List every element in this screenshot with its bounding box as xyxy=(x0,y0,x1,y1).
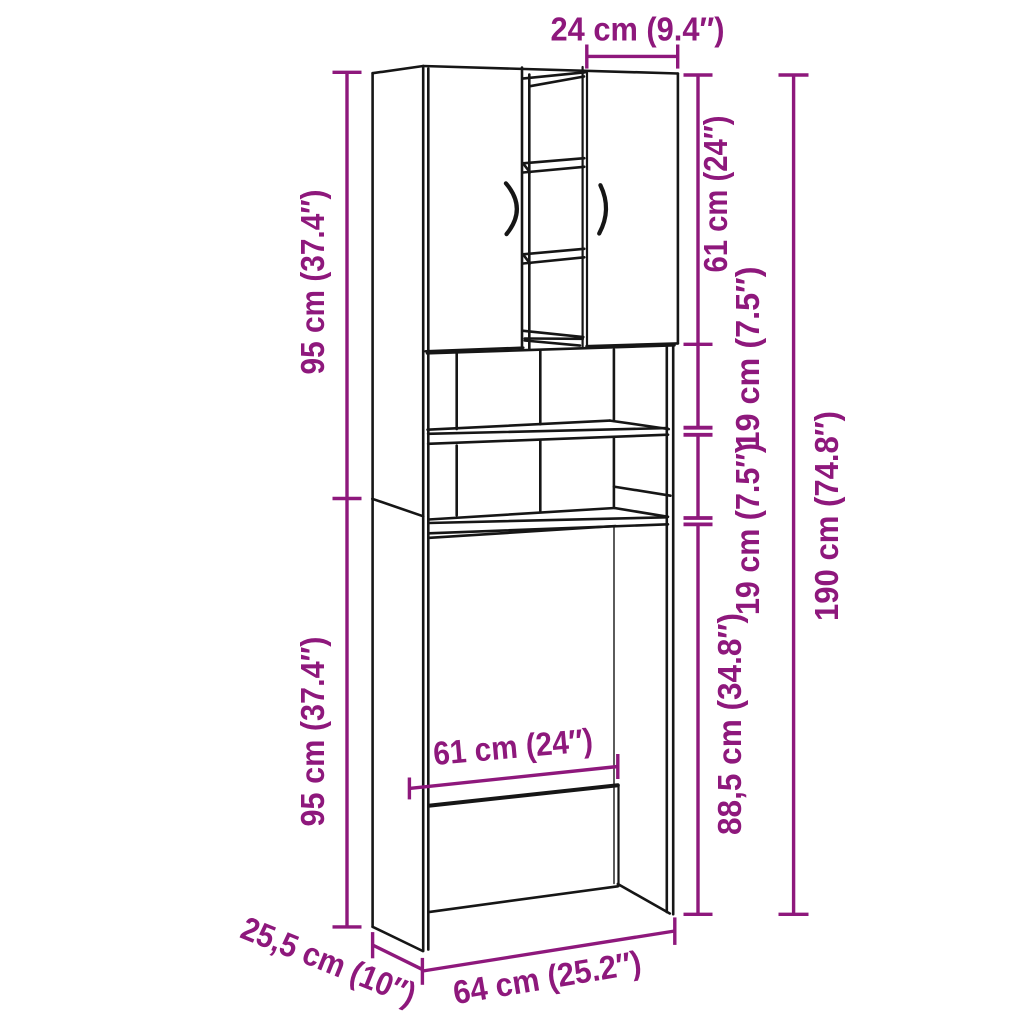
svg-text:61 cm (24″): 61 cm (24″) xyxy=(697,116,734,273)
svg-text:19 cm (7.5″): 19 cm (7.5″) xyxy=(729,443,766,615)
svg-text:95 cm (37.4″): 95 cm (37.4″) xyxy=(294,190,331,375)
svg-text:19 cm (7.5″): 19 cm (7.5″) xyxy=(729,267,766,450)
svg-text:88,5 cm (34.8″): 88,5 cm (34.8″) xyxy=(711,613,748,835)
svg-text:190 cm (74.8″): 190 cm (74.8″) xyxy=(808,411,845,621)
svg-text:95 cm (37.4″): 95 cm (37.4″) xyxy=(294,637,331,827)
svg-text:24 cm (9.4″): 24 cm (9.4″) xyxy=(551,11,725,48)
